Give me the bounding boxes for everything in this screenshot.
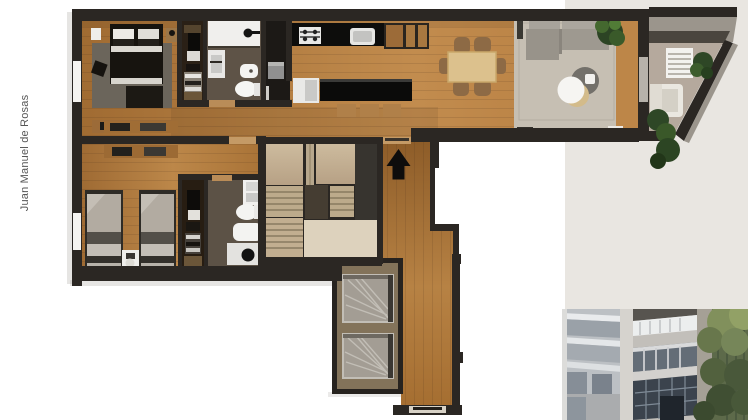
svg-text:Juan Manuel de Rosas: Juan Manuel de Rosas xyxy=(19,94,31,211)
